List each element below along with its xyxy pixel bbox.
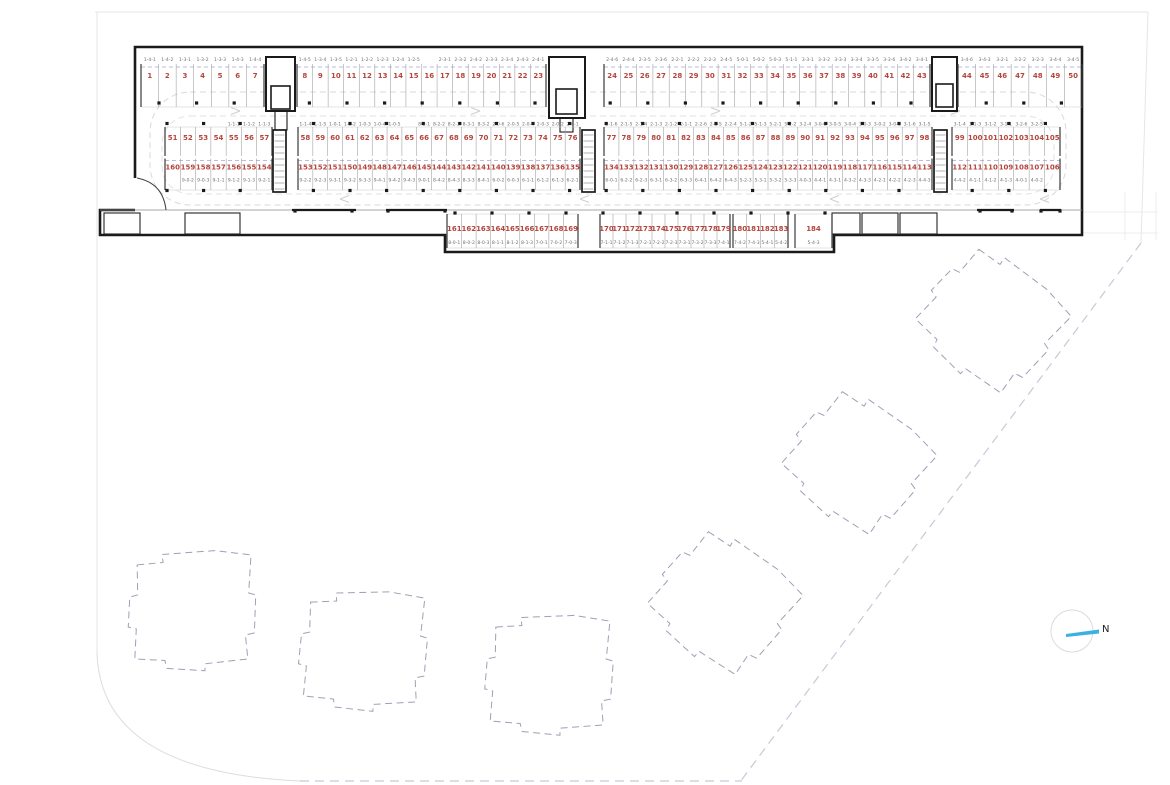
drive-arrow-icon [830, 196, 839, 203]
north-pointer-icon [1066, 630, 1099, 638]
unit-label-9-4-3: 9-4-3 [403, 178, 415, 184]
space-number-111: 111 [968, 164, 983, 172]
unit-label-4-0-3: 4-0-3 [799, 178, 811, 184]
space-number-67: 67 [434, 134, 444, 142]
space-number-85: 85 [726, 134, 736, 142]
column-dot [797, 101, 800, 104]
unit-label-4-1-1: 4-1-1 [969, 178, 981, 184]
future-building-sw-1 [127, 550, 257, 672]
space-number-26: 26 [640, 72, 650, 80]
unit-label-4-0-2: 4-0-2 [1031, 178, 1043, 184]
space-number-103: 103 [1014, 134, 1029, 142]
unit-label-3-0-3: 3-0-3 [859, 122, 871, 128]
unit-label-7-3-3: 7-3-3 [704, 240, 716, 246]
space-number-8: 8 [302, 72, 307, 80]
unit-label-7-4-2: 7-4-2 [734, 240, 746, 246]
space-number-39: 39 [852, 72, 862, 80]
space-number-97: 97 [905, 134, 915, 142]
unit-label-9-2-3: 9-2-3 [314, 178, 326, 184]
unit-label-2-1-3: 2-1-3 [650, 122, 662, 128]
column-dot [568, 122, 571, 125]
column-dot [312, 122, 315, 125]
entrance-door-arc [137, 178, 166, 210]
space-number-119: 119 [828, 164, 843, 172]
unit-label-7-1-3: 7-1-3 [626, 240, 638, 246]
unit-label-5-4-1: 5-4-1 [761, 240, 773, 246]
unit-label-2-2-4: 2-2-4 [725, 122, 737, 128]
unit-label-9-1-1: 9-1-1 [212, 178, 224, 184]
space-number-134: 134 [604, 164, 619, 172]
space-number-94: 94 [860, 134, 870, 142]
column-dot [385, 189, 388, 192]
space-number-79: 79 [636, 134, 646, 142]
unit-label-4-4-2: 4-4-2 [954, 178, 966, 184]
unit-label-9-4-2: 9-4-2 [388, 178, 400, 184]
space-number-116: 116 [873, 164, 888, 172]
unit-label-8-0-2: 8-0-2 [463, 240, 475, 246]
unit-label-6-3-3: 6-3-3 [680, 178, 692, 184]
space-number-45: 45 [980, 72, 990, 80]
column-dot [721, 101, 724, 104]
unit-label-3-3-1: 3-3-1 [802, 57, 814, 63]
space-number-142: 142 [461, 164, 476, 172]
space-number-156: 156 [226, 164, 241, 172]
space-number-1: 1 [147, 72, 152, 80]
column-dot [293, 209, 296, 212]
space-number-151: 151 [328, 164, 343, 172]
unit-label-2-3-3: 2-3-3 [485, 57, 497, 63]
unit-label-7-0-3: 7-0-3 [565, 240, 577, 246]
space-number-14: 14 [393, 72, 403, 80]
space-number-99: 99 [955, 134, 965, 142]
space-number-59: 59 [315, 134, 325, 142]
structural-columns [157, 101, 1063, 214]
unit-label-9-3-2: 9-3-2 [344, 178, 356, 184]
column-dot [985, 101, 988, 104]
space-number-139: 139 [506, 164, 521, 172]
space-number-128: 128 [694, 164, 709, 172]
unit-label-2-0-5: 2-0-5 [507, 122, 519, 128]
unit-label-4-3-3: 4-3-3 [859, 178, 871, 184]
space-number-62: 62 [360, 134, 370, 142]
space-number-127: 127 [709, 164, 724, 172]
unit-label-3-3-6: 3-3-6 [883, 57, 895, 63]
space-number-32: 32 [738, 72, 748, 80]
plan-canvas: 11-4-121-4-231-3-141-3-251-3-361-4-371-4… [0, 0, 1170, 785]
column-dot [678, 122, 681, 125]
unit-label-7-0-2: 7-0-2 [550, 240, 562, 246]
unit-label-9-0-3: 9-0-3 [197, 178, 209, 184]
column-dot [1058, 209, 1061, 212]
unit-label-3-3-2: 3-3-2 [818, 57, 830, 63]
unit-label-2-0-3: 2-0-3 [537, 122, 549, 128]
column-dot [421, 101, 424, 104]
space-number-180: 180 [733, 225, 748, 233]
space-number-113: 113 [917, 164, 932, 172]
unit-label-8-2-3: 8-2-3 [448, 122, 460, 128]
space-number-43: 43 [917, 72, 927, 80]
space-number-129: 129 [679, 164, 694, 172]
stair-core [934, 130, 947, 192]
space-number-115: 115 [887, 164, 902, 172]
space-number-184: 184 [806, 225, 821, 233]
unit-label-5-1-1: 5-1-1 [785, 57, 797, 63]
column-dot [443, 209, 446, 212]
space-number-101: 101 [983, 134, 998, 142]
column-dot [527, 211, 530, 214]
unit-label-1-3-5: 1-3-5 [330, 57, 342, 63]
column-dot [531, 189, 534, 192]
unit-label-1-2-4: 1-2-4 [392, 57, 404, 63]
unit-label-1-0-5: 1-0-5 [388, 122, 400, 128]
space-number-125: 125 [738, 164, 753, 172]
space-number-40: 40 [868, 72, 878, 80]
space-number-89: 89 [785, 134, 795, 142]
unit-label-1-4-1: 1-4-1 [144, 57, 156, 63]
unit-label-8-1-2: 8-1-2 [506, 240, 518, 246]
unit-label-6-1-3: 6-1-3 [552, 178, 564, 184]
space-number-63: 63 [375, 134, 385, 142]
space-number-108: 108 [1014, 164, 1029, 172]
space-number-112: 112 [952, 164, 967, 172]
unit-label-3-0-2: 3-0-2 [874, 122, 886, 128]
unit-label-2-4-5: 2-4-5 [720, 57, 732, 63]
space-number-84: 84 [711, 134, 721, 142]
column-dot [641, 122, 644, 125]
space-number-107: 107 [1030, 164, 1045, 172]
space-number-146: 146 [402, 164, 417, 172]
space-number-34: 34 [770, 72, 780, 80]
unit-label-8-0-3: 8-0-3 [477, 240, 489, 246]
space-number-44: 44 [962, 72, 972, 80]
column-dot [495, 189, 498, 192]
unit-label-6-0-2: 6-0-2 [492, 178, 504, 184]
unit-label-2-2-6: 2-2-6 [695, 122, 707, 128]
unit-label-5-0-3: 5-0-3 [769, 57, 781, 63]
unit-label-1-2-5: 1-2-5 [408, 57, 420, 63]
space-number-20: 20 [487, 72, 497, 80]
space-number-109: 109 [999, 164, 1014, 172]
unit-label-5-4-3: 5-4-3 [807, 240, 819, 246]
space-number-69: 69 [464, 134, 474, 142]
unit-label-9-3-3: 9-3-3 [359, 178, 371, 184]
unit-label-4-1-3: 4-1-3 [1000, 178, 1012, 184]
unit-label-1-0-4: 1-0-4 [374, 122, 386, 128]
space-number-46: 46 [997, 72, 1007, 80]
unit-label-1-2-1: 1-2-1 [345, 57, 357, 63]
unit-label-1-1-5: 1-1-5 [314, 122, 326, 128]
unit-label-4-2-3: 4-2-3 [904, 178, 916, 184]
space-number-148: 148 [372, 164, 387, 172]
column-dot [386, 209, 389, 212]
parking-row-middle-lower-row: 1601599-0-21589-0-31579-1-11569-1-21559-… [165, 159, 1060, 191]
space-number-28: 28 [672, 72, 682, 80]
unit-label-3-2-5: 3-2-5 [1031, 122, 1043, 128]
unit-label-2-1-1: 2-1-1 [680, 122, 692, 128]
unit-label-8-2-2: 8-2-2 [433, 122, 445, 128]
column-dot [909, 101, 912, 104]
unit-label-7-3-1: 7-3-1 [678, 240, 690, 246]
unit-label-1-3-3: 1-3-3 [214, 57, 226, 63]
space-number-33: 33 [754, 72, 764, 80]
space-number-81: 81 [666, 134, 676, 142]
column-dot [897, 122, 900, 125]
space-number-118: 118 [843, 164, 858, 172]
column-dot [239, 189, 242, 192]
column-dot [1044, 122, 1047, 125]
space-number-29: 29 [689, 72, 699, 80]
space-number-37: 37 [819, 72, 829, 80]
column-dot [861, 189, 864, 192]
unit-label-4-4-3: 4-4-3 [918, 178, 930, 184]
space-number-3: 3 [182, 72, 187, 80]
unit-label-9-4-1: 9-4-1 [374, 178, 386, 184]
space-number-153: 153 [298, 164, 313, 172]
drive-arrow-icon [340, 196, 349, 203]
column-dot [749, 211, 752, 214]
space-number-179: 179 [716, 225, 731, 233]
storage-room [185, 213, 240, 234]
space-number-54: 54 [214, 134, 224, 142]
unit-label-2-4-1: 2-4-1 [532, 57, 544, 63]
unit-label-1-1-4: 1-1-4 [299, 122, 311, 128]
future-building-e-3 [635, 515, 810, 688]
unit-label-4-0-1: 4-0-1 [1015, 178, 1027, 184]
unit-label-7-0-1: 7-0-1 [536, 240, 548, 246]
column-dot [348, 189, 351, 192]
space-number-162: 162 [462, 225, 477, 233]
column-dot [383, 101, 386, 104]
unit-label-6-4-1: 6-4-1 [695, 178, 707, 184]
column-dot [971, 122, 974, 125]
future-building-sw-2 [297, 589, 429, 713]
column-dot [1022, 101, 1025, 104]
unit-label-2-1-5: 2-1-5 [620, 122, 632, 128]
space-number-71: 71 [493, 134, 503, 142]
column-dot [239, 122, 242, 125]
column-dot [714, 189, 717, 192]
space-number-61: 61 [345, 134, 355, 142]
column-dot [609, 101, 612, 104]
column-dot [751, 189, 754, 192]
space-number-48: 48 [1033, 72, 1043, 80]
unit-label-9-1-3: 9-1-3 [243, 178, 255, 184]
space-number-78: 78 [621, 134, 631, 142]
space-number-24: 24 [607, 72, 617, 80]
unit-label-2-2-3: 2-2-3 [704, 57, 716, 63]
unit-label-7-4-3: 7-4-3 [748, 240, 760, 246]
unit-label-9-2-2: 9-2-2 [299, 178, 311, 184]
stair-core [549, 57, 585, 118]
space-number-47: 47 [1015, 72, 1025, 80]
unit-label-8-4-2: 8-4-2 [433, 178, 445, 184]
unit-label-5-2-3: 5-2-3 [740, 178, 752, 184]
unit-label-7-2-1: 7-2-1 [639, 240, 651, 246]
storage-room [832, 213, 860, 234]
space-number-18: 18 [456, 72, 466, 80]
unit-label-7-4-1: 7-4-1 [717, 240, 729, 246]
space-number-130: 130 [664, 164, 679, 172]
unit-label-1-2-2: 1-2-2 [361, 57, 373, 63]
space-number-159: 159 [181, 164, 196, 172]
column-dot [422, 189, 425, 192]
space-number-122: 122 [783, 164, 798, 172]
space-number-27: 27 [656, 72, 666, 80]
unit-label-6-1-1: 6-1-1 [522, 178, 534, 184]
space-number-114: 114 [902, 164, 917, 172]
column-dot [872, 101, 875, 104]
unit-label-5-0-2: 5-0-2 [753, 57, 765, 63]
storage-room [862, 213, 898, 234]
space-number-96: 96 [890, 134, 900, 142]
unit-label-1-3-2: 1-3-2 [196, 57, 208, 63]
future-building-e-2 [769, 375, 944, 548]
space-number-121: 121 [798, 164, 813, 172]
unit-label-1-3-1: 1-3-1 [179, 57, 191, 63]
column-dot [605, 122, 608, 125]
space-number-149: 149 [357, 164, 372, 172]
column-dot [601, 211, 604, 214]
space-number-4: 4 [200, 72, 205, 80]
space-number-137: 137 [536, 164, 551, 172]
space-number-164: 164 [491, 225, 506, 233]
unit-label-1-0-1: 1-0-1 [329, 122, 341, 128]
column-dot [564, 211, 567, 214]
space-number-75: 75 [553, 134, 563, 142]
space-number-123: 123 [768, 164, 783, 172]
column-dot [646, 101, 649, 104]
space-number-9: 9 [318, 72, 323, 80]
unit-label-2-1-2: 2-1-2 [665, 122, 677, 128]
space-number-167: 167 [534, 225, 549, 233]
column-dot [1044, 189, 1047, 192]
space-number-74: 74 [538, 134, 548, 142]
site-plan: 11-4-121-4-231-3-141-3-251-3-361-4-371-4… [0, 0, 1170, 785]
column-dot [788, 189, 791, 192]
unit-label-1-4-2: 1-4-2 [161, 57, 173, 63]
unit-label-1-2-3: 1-2-3 [377, 57, 389, 63]
column-dot [165, 122, 168, 125]
space-number-23: 23 [533, 72, 543, 80]
column-dot [531, 122, 534, 125]
column-dot [350, 209, 353, 212]
space-number-76: 76 [568, 134, 578, 142]
space-number-183: 183 [774, 225, 789, 233]
column-dot [823, 211, 826, 214]
space-number-25: 25 [624, 72, 634, 80]
space-number-117: 117 [858, 164, 873, 172]
space-number-98: 98 [920, 134, 930, 142]
column-dot [453, 211, 456, 214]
unit-label-4-3-2: 4-3-2 [844, 178, 856, 184]
space-number-36: 36 [803, 72, 813, 80]
column-dot [533, 101, 536, 104]
unit-label-6-4-3: 6-4-3 [725, 178, 737, 184]
space-number-124: 124 [753, 164, 768, 172]
space-number-182: 182 [760, 225, 775, 233]
unit-label-3-4-5: 3-4-5 [1067, 57, 1079, 63]
space-number-157: 157 [211, 164, 226, 172]
unit-label-1-1-3: 1-1-3 [258, 122, 270, 128]
column-dot [202, 189, 205, 192]
space-number-6: 6 [235, 72, 240, 80]
space-number-70: 70 [479, 134, 489, 142]
unit-label-3-4-6: 3-4-6 [961, 57, 973, 63]
column-dot [1010, 209, 1013, 212]
column-dot [195, 101, 198, 104]
drive-arrow-icon [580, 196, 589, 203]
space-number-11: 11 [347, 72, 357, 80]
unit-label-8-1-1: 8-1-1 [492, 240, 504, 246]
future-building-e-1 [902, 233, 1077, 407]
space-number-86: 86 [741, 134, 751, 142]
space-number-51: 51 [168, 134, 178, 142]
space-number-104: 104 [1030, 134, 1045, 142]
unit-label-1-0-3: 1-0-3 [359, 122, 371, 128]
column-dot [496, 101, 499, 104]
unit-label-3-1-6: 3-1-6 [904, 122, 916, 128]
space-number-90: 90 [800, 134, 810, 142]
space-number-181: 181 [746, 225, 761, 233]
column-dot [675, 211, 678, 214]
unit-label-7-1-2: 7-1-2 [613, 240, 625, 246]
space-number-150: 150 [343, 164, 358, 172]
space-number-83: 83 [696, 134, 706, 142]
space-number-13: 13 [378, 72, 388, 80]
space-number-163: 163 [476, 225, 491, 233]
unit-label-3-2-1: 3-2-1 [996, 57, 1008, 63]
space-number-77: 77 [607, 134, 617, 142]
unit-label-8-3-3: 8-3-3 [463, 178, 475, 184]
unit-label-9-0-1: 9-0-1 [418, 178, 430, 184]
column-dot [165, 189, 168, 192]
space-number-158: 158 [196, 164, 211, 172]
unit-label-8-4-1: 8-4-1 [477, 178, 489, 184]
column-dot [1007, 122, 1010, 125]
space-number-102: 102 [999, 134, 1014, 142]
storage-room [900, 213, 937, 234]
space-number-166: 166 [520, 225, 535, 233]
unit-label-4-1-2: 4-1-2 [985, 178, 997, 184]
space-number-49: 49 [1051, 72, 1061, 80]
space-number-30: 30 [705, 72, 715, 80]
unit-label-5-2-1: 5-2-1 [769, 122, 781, 128]
space-number-165: 165 [505, 225, 520, 233]
column-dot [458, 122, 461, 125]
column-dot [458, 189, 461, 192]
space-number-57: 57 [259, 134, 269, 142]
unit-label-4-2-2: 4-2-2 [889, 178, 901, 184]
space-number-38: 38 [835, 72, 845, 80]
unit-label-3-2-3: 3-2-3 [1032, 57, 1044, 63]
unit-label-2-0-2: 2-0-2 [552, 122, 564, 128]
unit-label-7-3-2: 7-3-2 [691, 240, 703, 246]
space-number-7: 7 [253, 72, 258, 80]
space-number-80: 80 [651, 134, 661, 142]
unit-label-9-3-1: 9-3-1 [329, 178, 341, 184]
space-number-60: 60 [330, 134, 340, 142]
unit-label-9-0-2: 9-0-2 [182, 178, 194, 184]
unit-label-9-1-2: 9-1-2 [228, 178, 240, 184]
space-number-73: 73 [523, 134, 533, 142]
space-number-5: 5 [218, 72, 223, 80]
column-dot [202, 122, 205, 125]
unit-label-3-2-6: 3-2-6 [1015, 122, 1027, 128]
unit-label-2-3-6: 2-3-6 [655, 57, 667, 63]
space-number-50: 50 [1068, 72, 1078, 80]
space-number-110: 110 [983, 164, 998, 172]
unit-label-2-4-6: 2-4-6 [606, 57, 618, 63]
